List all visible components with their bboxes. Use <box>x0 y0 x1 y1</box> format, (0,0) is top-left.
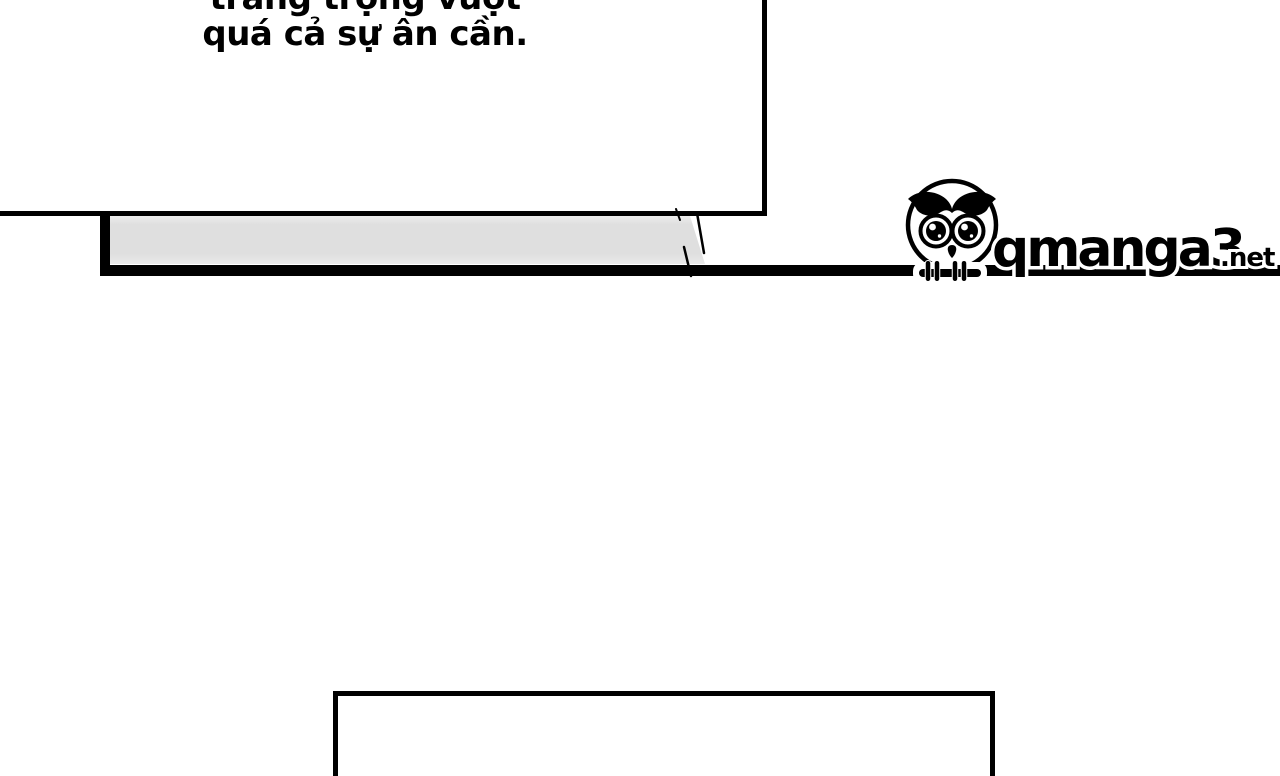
owl-left-eye <box>921 216 952 247</box>
speech-bubble-top-text: trang trọng vượt quá cả sự ân cần. <box>65 0 665 52</box>
panel-floor-line <box>100 265 1280 276</box>
table-edge-surface <box>110 216 705 264</box>
owl-beak <box>948 245 957 258</box>
comic-page-canvas: trang trọng vượt quá cả sự ân cần. <box>0 0 1280 776</box>
owl-brow <box>908 192 996 216</box>
speech-bubble-bottom <box>333 691 995 776</box>
owl-right-eye <box>953 216 984 247</box>
speech-line-2: quá cả sự ân cần. <box>65 16 665 52</box>
owl-head-circle <box>908 181 996 269</box>
